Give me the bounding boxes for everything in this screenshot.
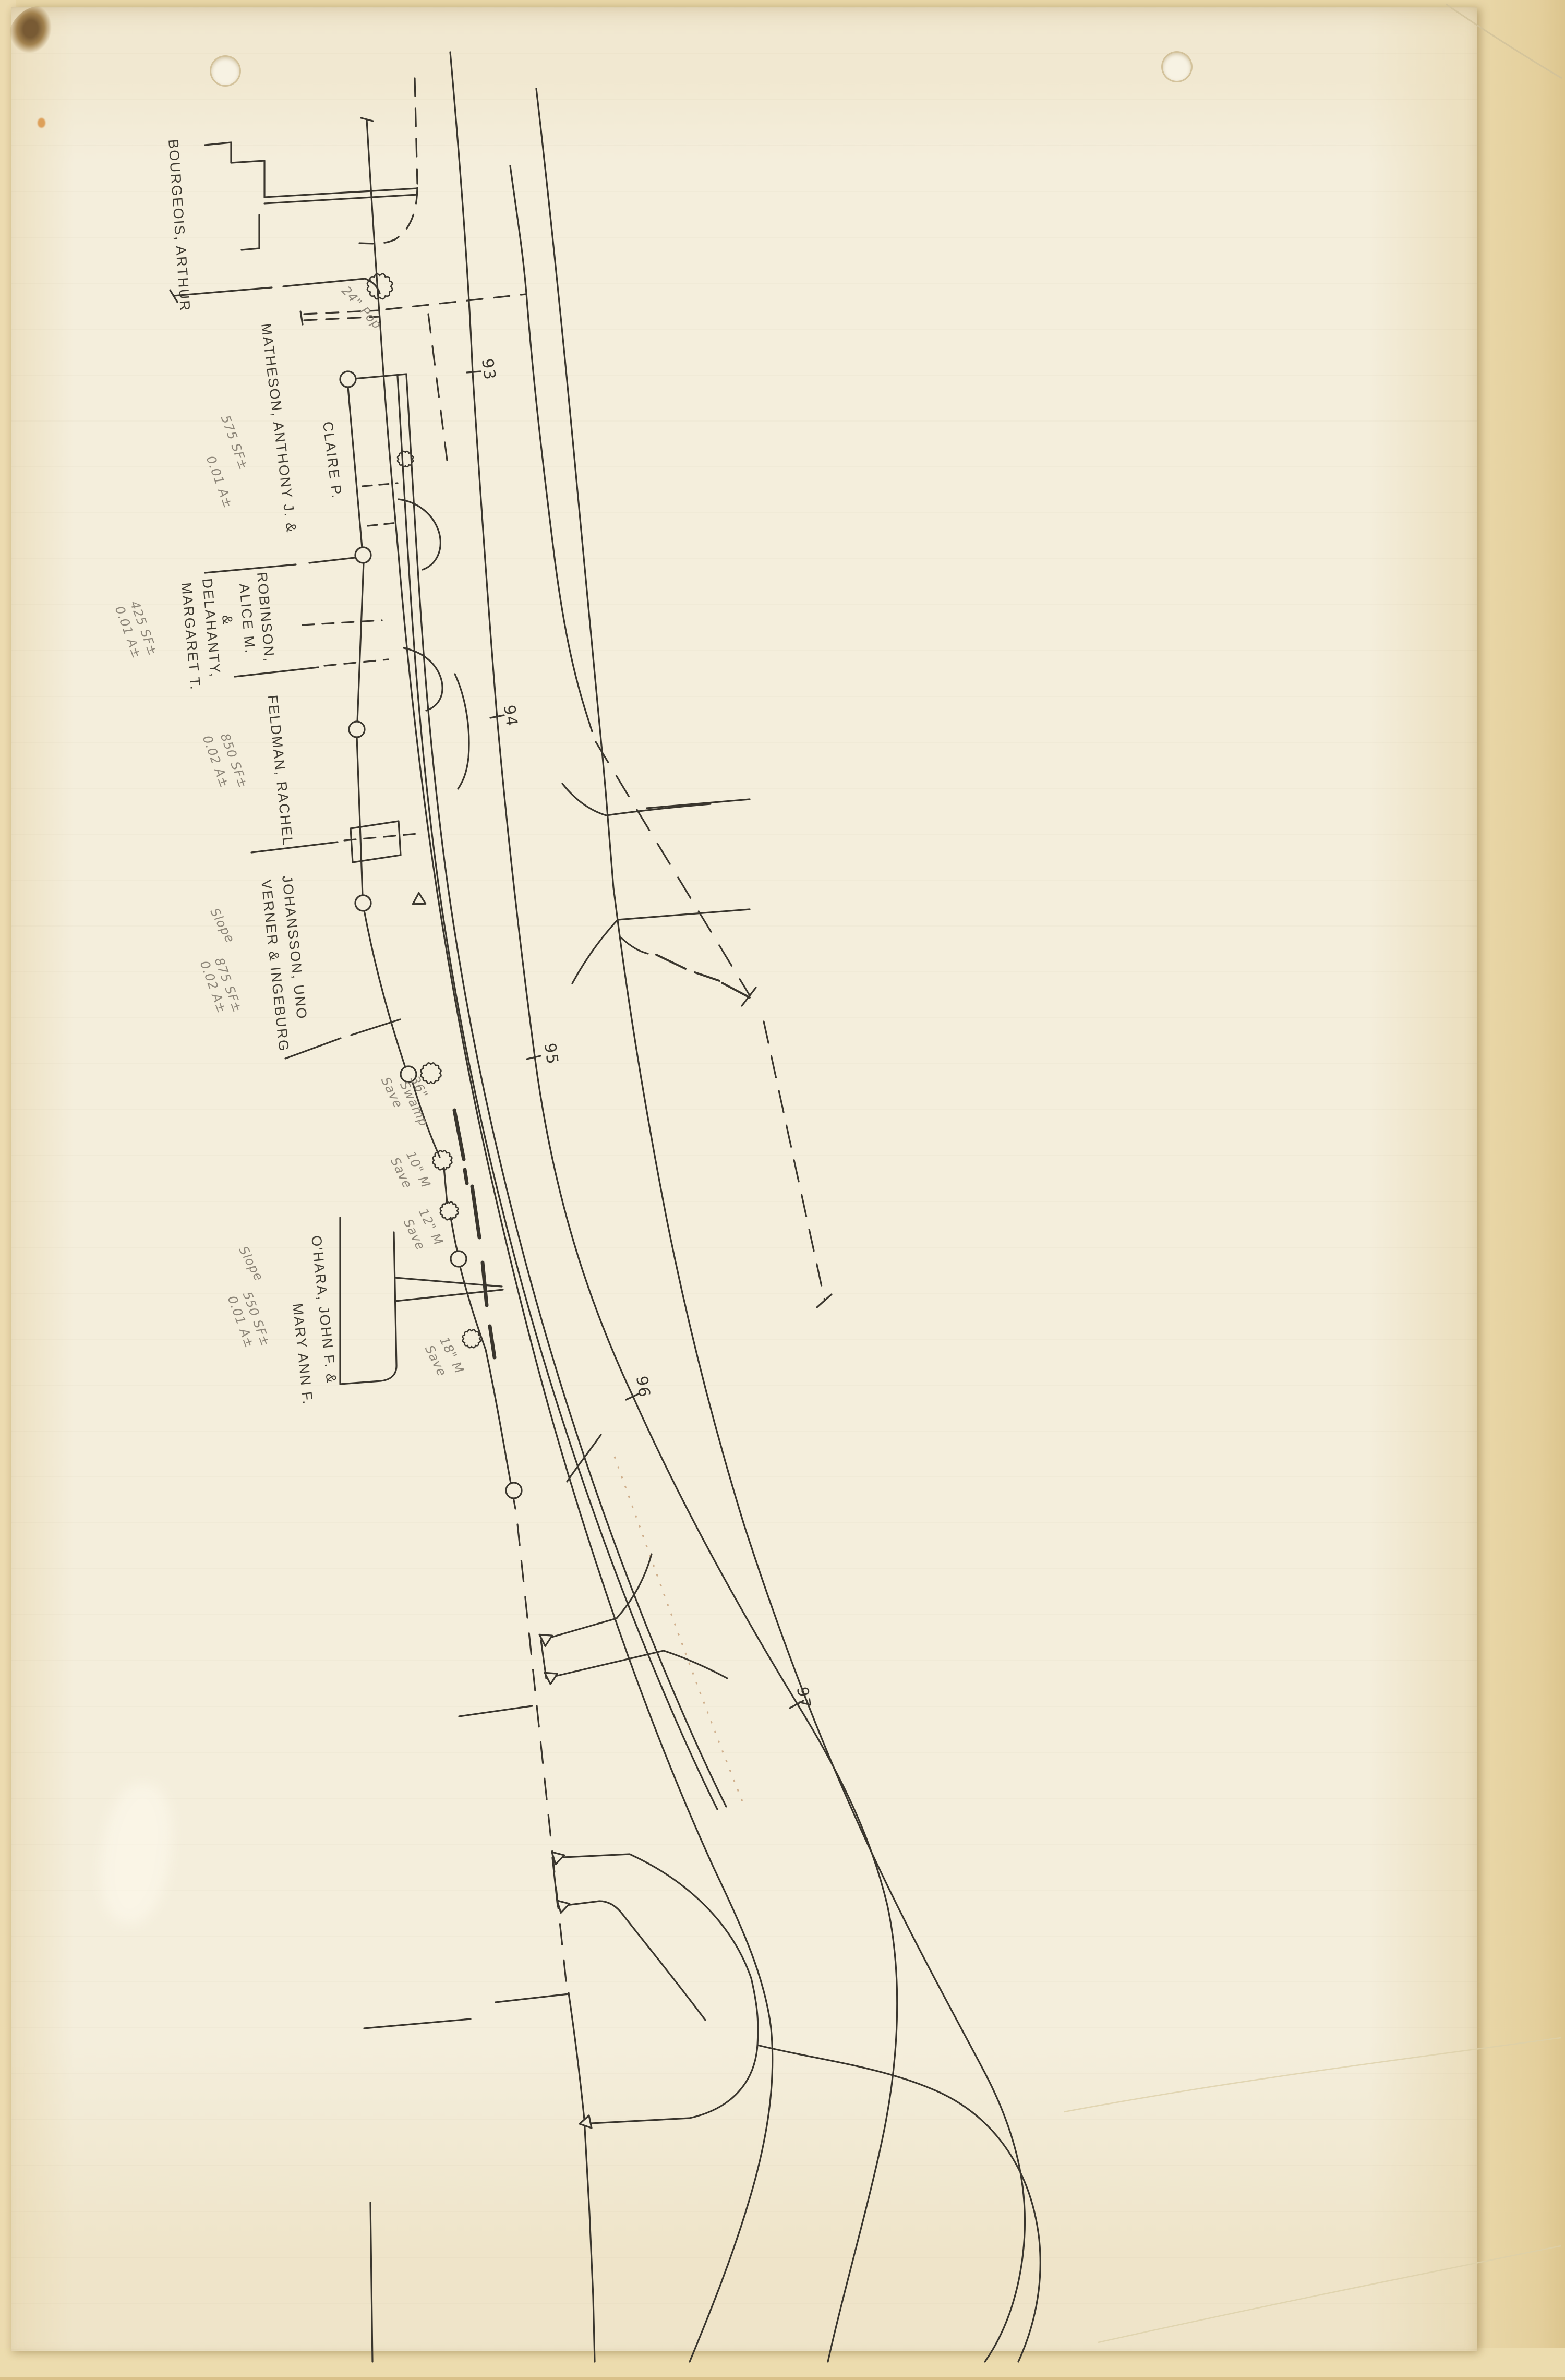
pencil-taking-matheson-sf: 575 SF±	[218, 413, 251, 472]
scanned-plat-sheet: { "colors":{"paper":"#f4eedc","backing":…	[0, 0, 1565, 2377]
station-label-93: 93	[478, 357, 499, 382]
owner-label-ampersand: &	[219, 614, 236, 626]
owner-label-bourgeois: BOURGEOIS, ARTHUR	[165, 139, 193, 312]
owner-label-feldman: FELDMAN, RACHEL	[264, 694, 296, 847]
pencil-note-slope-johansson: Slope	[207, 906, 237, 945]
station-label-94: 94	[500, 704, 521, 728]
owner-label-delahanty-line1: DELAHANTY,	[199, 578, 224, 678]
owner-label-robinson-line2: ALICE M.	[236, 583, 258, 655]
owner-label-ohara-line1: O'HARA, JOHN F. &	[308, 1235, 340, 1385]
station-label-95: 95	[540, 1042, 562, 1066]
station-label-97: 97	[793, 1686, 814, 1710]
owner-label-matheson-line1: MATHESON, ANTHONY J. &	[258, 322, 299, 534]
pencil-note-slope-ohara: Slope	[236, 1244, 266, 1283]
pencil-taking-matheson-acres: 0.01 A±	[203, 454, 236, 510]
station-label-96: 96	[632, 1375, 654, 1399]
owner-label-matheson-line2: CLAIRE P.	[319, 420, 345, 500]
owner-label-delahanty-line2: MARGARET T.	[178, 582, 203, 691]
owner-label-ohara-line2: MARY ANN F.	[289, 1303, 316, 1406]
pencil-tree-note-24in-pop: 24" Pop	[339, 283, 384, 332]
label-layer: BOURGEOIS, ARTHURMATHESON, ANTHONY J. &C…	[0, 0, 1565, 2377]
